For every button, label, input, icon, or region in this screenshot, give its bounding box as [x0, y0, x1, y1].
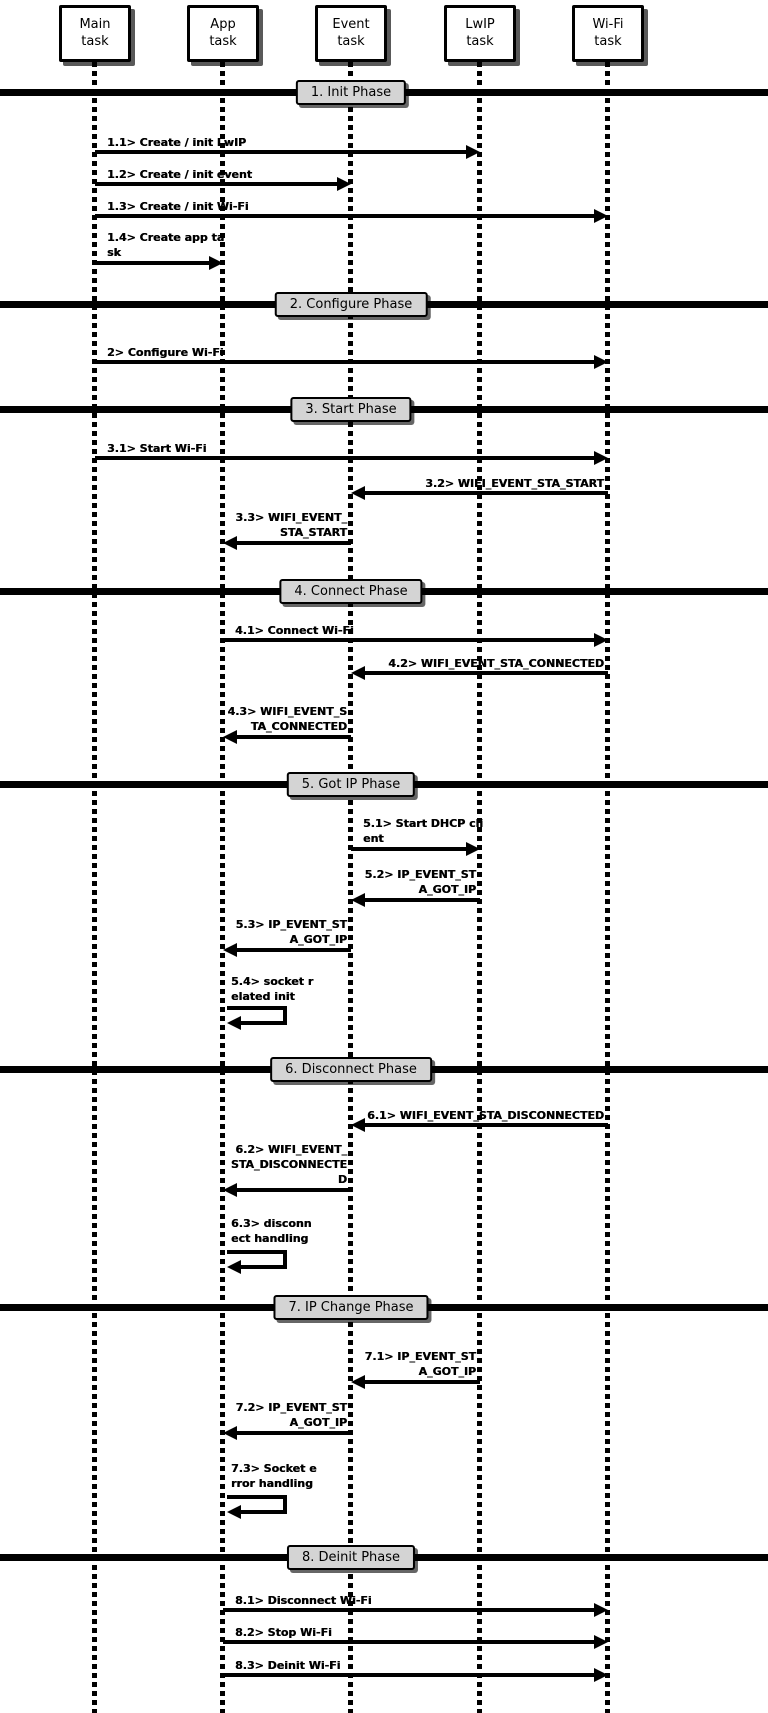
message-arrow: [95, 214, 595, 218]
message-arrow: [365, 1380, 480, 1384]
arrowhead-left: [351, 1375, 365, 1389]
participant-lwip-task: LwIP task: [444, 5, 516, 62]
arrowhead-left: [351, 1118, 365, 1132]
arrowhead-right: [594, 1603, 608, 1617]
arrowhead-left: [223, 1183, 237, 1197]
phase-label-disconnect: 6. Disconnect Phase: [270, 1057, 432, 1082]
message-label: 8.3> Deinit Wi-Fi: [235, 1658, 340, 1673]
self-message-arrow: [241, 1510, 287, 1514]
phase-label-start: 3. Start Phase: [290, 397, 411, 422]
message-arrow: [95, 182, 338, 186]
message-arrow: [365, 671, 608, 675]
self-message-arrow: [241, 1265, 287, 1269]
arrowhead-left: [351, 486, 365, 500]
message-arrow: [237, 541, 351, 545]
wifi-task-sequence-diagram: Main task App task Event task LwIP task …: [0, 0, 768, 1713]
message-label: 5.4> socket r elated init: [231, 974, 313, 1004]
message-arrow: [223, 1640, 595, 1644]
arrowhead-left: [351, 893, 365, 907]
arrowhead-left: [223, 730, 237, 744]
message-label: 6.2> WIFI_EVENT_ STA_DISCONNECTE D: [231, 1142, 347, 1187]
message-label: 3.3> WIFI_EVENT_ STA_START: [235, 510, 347, 540]
message-label: 1.1> Create / init LwIP: [107, 135, 246, 150]
message-arrow: [95, 261, 210, 265]
message-arrow: [95, 360, 595, 364]
message-arrow: [365, 1123, 608, 1127]
message-label: 6.3> disconn ect handling: [231, 1216, 311, 1246]
lifeline-wifi-task: [605, 62, 610, 1713]
message-label: 1.4> Create app ta sk: [107, 230, 224, 260]
arrowhead-left: [351, 666, 365, 680]
message-arrow: [223, 638, 595, 642]
message-label: 6.1> WIFI_EVENT_STA_DISCONNECTED: [367, 1108, 604, 1123]
phase-label-ip-change: 7. IP Change Phase: [273, 1295, 428, 1320]
message-arrow: [237, 948, 351, 952]
message-arrow: [237, 735, 351, 739]
self-message-arrow: [227, 1006, 287, 1010]
participant-main-task: Main task: [59, 5, 131, 62]
message-label: 5.2> IP_EVENT_ST A_GOT_IP: [365, 867, 476, 897]
message-label: 4.3> WIFI_EVENT_S TA_CONNECTED: [227, 704, 347, 734]
participant-app-task: App task: [187, 5, 259, 62]
arrowhead-left: [223, 943, 237, 957]
phase-label-got-ip: 5. Got IP Phase: [287, 772, 415, 797]
participant-label: App task: [209, 17, 236, 50]
participant-event-task: Event task: [315, 5, 387, 62]
message-label: 3.2> WIFI_EVENT_STA_START: [425, 476, 604, 491]
message-arrow: [365, 491, 608, 495]
message-arrow: [365, 898, 480, 902]
arrowhead-left: [223, 1426, 237, 1440]
arrowhead-right: [594, 633, 608, 647]
message-arrow: [95, 150, 467, 154]
arrowhead-left: [227, 1016, 241, 1030]
arrowhead-right: [594, 209, 608, 223]
self-message-arrow: [227, 1495, 287, 1499]
phase-label-init: 1. Init Phase: [296, 80, 406, 105]
message-label: 1.3> Create / init Wi-Fi: [107, 199, 249, 214]
lifeline-lwip-task: [477, 62, 482, 1713]
participant-label: Wi-Fi task: [592, 17, 623, 50]
participant-wifi-task: Wi-Fi task: [572, 5, 644, 62]
arrowhead-right: [594, 355, 608, 369]
message-arrow: [95, 456, 595, 460]
message-label: 4.2> WIFI_EVENT_STA_CONNECTED: [388, 656, 604, 671]
message-label: 7.2> IP_EVENT_ST A_GOT_IP: [236, 1400, 347, 1430]
message-label: 5.3> IP_EVENT_ST A_GOT_IP: [236, 917, 347, 947]
arrowhead-right: [466, 842, 480, 856]
participant-label: Event task: [332, 17, 369, 50]
message-label: 3.1> Start Wi-Fi: [107, 441, 206, 456]
arrowhead-left: [227, 1505, 241, 1519]
message-arrow: [237, 1431, 351, 1435]
self-message-arrow: [227, 1250, 287, 1254]
phase-label-connect: 4. Connect Phase: [279, 579, 422, 604]
message-arrow: [351, 847, 466, 851]
message-arrow: [223, 1608, 595, 1612]
message-label: 4.1> Connect Wi-Fi: [235, 623, 354, 638]
participant-label: Main task: [79, 17, 110, 50]
self-message-arrow: [241, 1021, 287, 1025]
arrowhead-left: [223, 536, 237, 550]
arrowhead-right: [594, 451, 608, 465]
lifeline-main-task: [92, 62, 97, 1713]
lifeline-app-task: [220, 62, 225, 1713]
message-label: 2> Configure Wi-Fi: [107, 345, 224, 360]
phase-label-configure: 2. Configure Phase: [275, 292, 428, 317]
phase-label-deinit: 8. Deinit Phase: [287, 1545, 415, 1570]
message-arrow: [237, 1188, 351, 1192]
message-label: 1.2> Create / init event: [107, 167, 252, 182]
arrowhead-left: [227, 1260, 241, 1274]
message-label: 8.1> Disconnect Wi-Fi: [235, 1593, 372, 1608]
arrowhead-right: [337, 177, 351, 191]
message-label: 8.2> Stop Wi-Fi: [235, 1625, 332, 1640]
arrowhead-right: [594, 1668, 608, 1682]
arrowhead-right: [466, 145, 480, 159]
participant-label: LwIP task: [465, 17, 495, 50]
arrowhead-right: [594, 1635, 608, 1649]
message-label: 7.3> Socket e rror handling: [231, 1461, 317, 1491]
message-label: 7.1> IP_EVENT_ST A_GOT_IP: [365, 1349, 476, 1379]
message-arrow: [223, 1673, 595, 1677]
arrowhead-right: [209, 256, 223, 270]
message-label: 5.1> Start DHCP cli ent: [363, 816, 483, 846]
